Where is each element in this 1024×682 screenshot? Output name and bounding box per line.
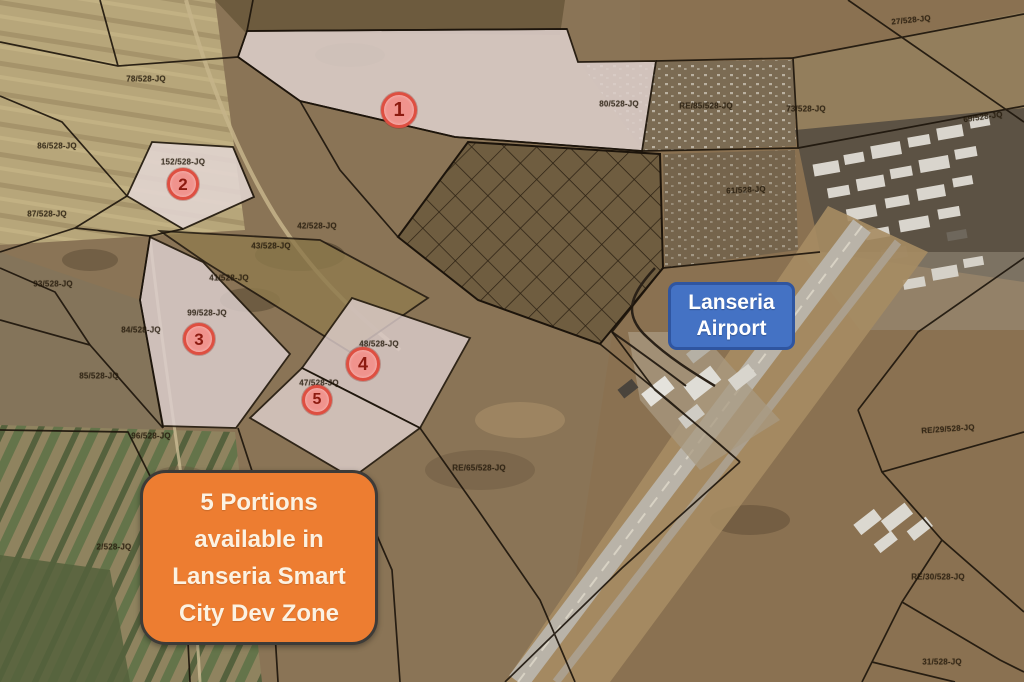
portion-marker: 5 [302,385,332,415]
portions-callout-box: 5 Portions available in Lanseria Smart C… [140,470,378,645]
callout-line-3: Lanseria Smart [143,558,375,595]
portion-marker: 3 [183,323,215,355]
callout-line-1: 5 Portions [143,484,375,521]
airport-label-box: Lanseria Airport [668,282,795,350]
callout-line-4: City Dev Zone [143,595,375,632]
airport-label-line2: Airport [671,317,792,341]
airport-label-line1: Lanseria [671,291,792,315]
portion-marker: 2 [167,168,199,200]
lanseria-map: 78/528-JQ27/528-JQ86/528-JQ152/528-JQ87/… [0,0,1024,682]
portion-marker: 4 [346,347,380,381]
callout-line-2: available in [143,521,375,558]
portion-marker: 1 [381,92,417,128]
